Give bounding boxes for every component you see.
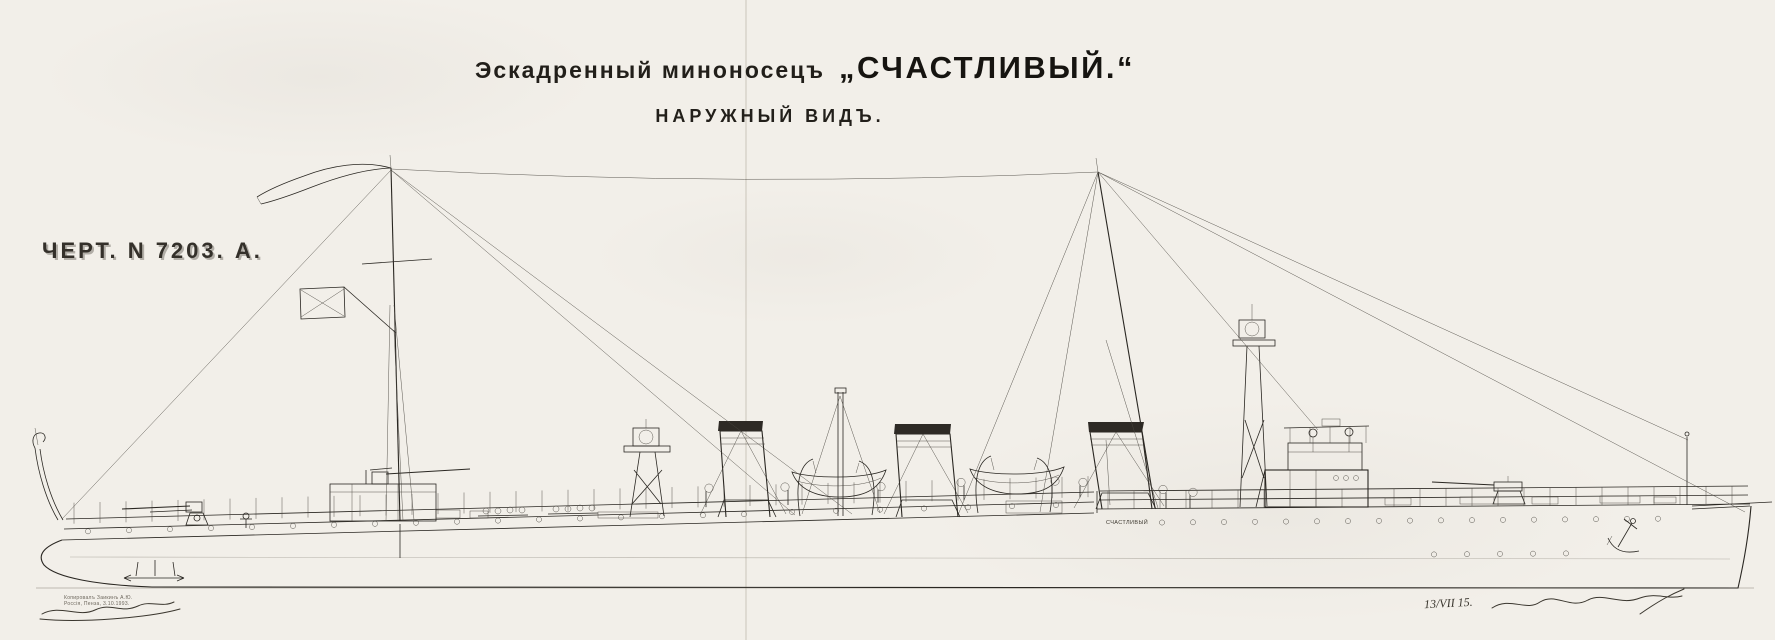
foremast [1096,158,1158,508]
hull-name-label: СЧАСТЛИВЫЙ [1106,518,1148,526]
pennant [257,164,391,204]
copy-stamp-line2: Россія, Пенза, 3.10.1993. [64,601,132,607]
stern-gun [122,502,208,525]
drawing-subtitle: НАРУЖНЫЙ ВИДЪ. [655,106,884,127]
bow-group [1685,432,1772,509]
ensign-flag [300,287,345,319]
aerial-wire [391,169,1098,179]
drawing-number: ЧЕРТ. N 7203. А. [42,238,263,264]
fore-searchlight-tower [1233,304,1275,507]
mainmast [344,155,432,521]
baseline [36,557,1754,588]
copy-stamp: Копировалъ Заикинъ А.Ю. Россія, Пенза, 3… [64,595,132,607]
anchor [1607,519,1639,553]
stern-group [33,428,400,581]
blueprint-sheet: СЧАСТЛИВЫЙ [0,0,1775,640]
rigging [62,169,1745,519]
funnel-2 [884,424,968,517]
deck-fittings-fwd [1006,496,1676,513]
stern-davit-curve [35,448,58,520]
ship-drawing: СЧАСТЛИВЫЙ [0,0,1775,640]
stern-scroll [33,433,45,448]
aft-searchlight-tower [624,419,670,517]
approval-signature [1492,589,1684,614]
title-ship-name: „СЧАСТЛИВЫЙ.“ [839,50,1135,86]
mainmast-yard [362,259,432,264]
shrouds [386,305,414,521]
deck-fittings-aft [240,505,658,528]
funnel-3-aft [700,421,786,517]
capstan [240,519,252,528]
hull: СЧАСТЛИВЫЙ [41,476,1751,588]
bridge [1256,419,1369,507]
drawing-title: Эскадренный миноносецъ „СЧАСТЛИВЫЙ.“ [475,50,1135,86]
bridge-rail [1284,426,1369,428]
gaff [344,287,396,333]
title-prefix: Эскадренный миноносецъ [475,57,825,84]
date-note: 13/VII 15. [1424,595,1473,613]
draft-mark [124,560,184,581]
funnel-1-raked [1074,422,1164,509]
